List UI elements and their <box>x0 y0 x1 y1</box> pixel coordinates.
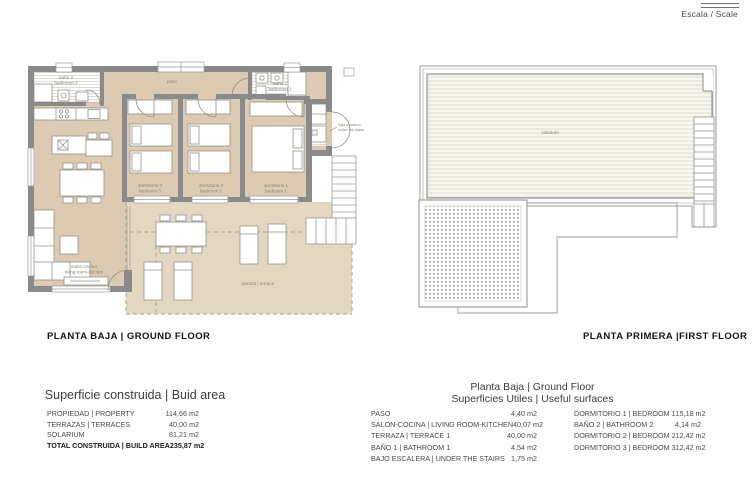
table-row: SOLARIUM 81,21 m2 <box>47 430 199 441</box>
pergola-grid <box>419 200 527 307</box>
label-paso: paso <box>167 79 177 84</box>
table-row: TERRAZA | TERRACE 1 40,00 m2 <box>371 430 537 441</box>
row-value: 12,42 m2 <box>676 430 706 441</box>
table-row: DORMITORIO 1 | BEDROOM 1 15,18 m2 <box>574 408 701 419</box>
first-floor-stairs <box>694 117 714 227</box>
build-area-table-title: Superficie construida | Buid area <box>40 388 230 402</box>
scale-label: Escala / Scale <box>652 9 738 19</box>
table-row: TERRAZAS | TERRACES 40,00 m2 <box>47 420 199 431</box>
row-value: 114,66 m2 <box>166 409 199 420</box>
useful-surfaces-left-column: PASO 4,40 m2 SALON-COCINA | LIVING ROOM-… <box>371 408 537 464</box>
row-value: 4,14 m2 <box>675 419 701 430</box>
row-value: 40,07 m2 <box>513 419 543 430</box>
row-label: SOLARIUM <box>47 430 85 441</box>
row-label: TOTAL CONSTRUIDA | BUILD AREA <box>47 441 170 452</box>
useful-surfaces-title-line1: Planta Baja | Ground Floor <box>400 381 665 393</box>
label-bath2-es: baño 2 <box>59 75 73 80</box>
ground-floor-title: PLANTA BAJA | GROUND FLOOR <box>47 331 210 342</box>
table-row: SALON-COCINA | LIVING ROOM-KITCHEN 40,07… <box>371 419 537 430</box>
row-label: BAJO ESCALERA | UNDER THE STAIRS <box>371 453 505 464</box>
scale-bar <box>701 3 739 8</box>
table-row-total: TOTAL CONSTRUIDA | BUILD AREA 235,87 m2 <box>47 441 199 452</box>
label-bed2-es: dormitorio 2 <box>199 183 224 188</box>
table-row: BAÑO 2 | BATHROOM 2 4,14 m2 <box>574 419 701 430</box>
row-value: 235,87 m2 <box>170 441 204 452</box>
table-row: BAJO ESCALERA | UNDER THE STAIRS 1,75 m2 <box>371 453 537 464</box>
row-label: BAÑO 1 | BATHROOM 1 <box>371 442 450 453</box>
table-row: BAÑO 1 | BATHROOM 1 4,54 m2 <box>371 442 537 453</box>
solarium-deck <box>427 73 713 198</box>
label-living-en: living room-kitchen <box>65 270 104 275</box>
row-value: 40,00 m2 <box>507 430 537 441</box>
row-value: 1,75 m2 <box>511 453 537 464</box>
label-bed3-es: dormitorio 3 <box>138 183 163 188</box>
label-living-es: salon-cocina <box>71 264 97 269</box>
label-bath1-es: baño 1 <box>273 81 287 86</box>
ground-floor-plan: baño 2 bathroom 2 paso baño 1 bathroom 1… <box>24 50 370 338</box>
table-row: PASO 4,40 m2 <box>371 408 537 419</box>
dining-set <box>60 163 104 203</box>
useful-surfaces-title-line2: Superficies Utiles | Useful surfaces <box>400 393 665 405</box>
row-label: TERRAZA | TERRACE 1 <box>371 430 450 441</box>
row-label: DORMITORIO 1 | BEDROOM 1 <box>574 408 676 419</box>
label-bath1-en: bathroom 1 <box>268 87 292 92</box>
table-row: PROPIEDAD | PROPERTY 114,66 m2 <box>47 409 199 420</box>
label-bed2-en: bedroom 2 <box>200 189 222 194</box>
label-bed1-en: bedroom 1 <box>265 189 287 194</box>
first-floor-plan: solarium <box>412 52 744 324</box>
row-label: SALON-COCINA | LIVING ROOM-KITCHEN <box>371 419 513 430</box>
label-terrace: terraza | terrace <box>242 281 275 286</box>
row-value: 4,54 m2 <box>511 442 537 453</box>
row-value: 15,18 m2 <box>676 408 706 419</box>
first-floor-title: PLANTA PRIMERA |FIRST FLOOR <box>583 331 747 342</box>
row-label: PROPIEDAD | PROPERTY <box>47 409 135 420</box>
label-solarium: solarium <box>541 130 559 135</box>
label-under-stairs-en: under the stairs <box>338 128 364 132</box>
row-value: 4,40 m2 <box>511 408 537 419</box>
row-label: DORMITORIO 2 | BEDROOM 2 <box>574 430 676 441</box>
exterior-stairs <box>306 156 356 244</box>
label-bath2-en: bathroom 2 <box>54 81 78 86</box>
row-label: TERRAZAS | TERRACES <box>47 420 130 431</box>
row-label: PASO <box>371 408 390 419</box>
label-under-stairs-es: bajo escalera <box>338 123 361 127</box>
row-label: DORMITORIO 3 | BEDROOM 3 <box>574 442 676 453</box>
useful-surfaces-right-column: DORMITORIO 1 | BEDROOM 1 15,18 m2 BAÑO 2… <box>574 408 701 453</box>
row-value: 81,21 m2 <box>169 430 199 441</box>
table-row: DORMITORIO 2 | BEDROOM 2 12,42 m2 <box>574 430 701 441</box>
row-value: 12,42 m2 <box>676 442 706 453</box>
label-bed3-en: bedroom 3 <box>139 189 161 194</box>
row-value: 40,00 m2 <box>169 420 199 431</box>
table-row: DORMITORIO 3 | BEDROOM 3 12,42 m2 <box>574 442 701 453</box>
build-area-table: PROPIEDAD | PROPERTY 114,66 m2 TERRAZAS … <box>47 409 199 451</box>
useful-surfaces-title: Planta Baja | Ground Floor Superficies U… <box>400 381 665 405</box>
label-bed1-es: dormitorio 1 <box>264 183 289 188</box>
row-label: BAÑO 2 | BATHROOM 2 <box>574 419 653 430</box>
